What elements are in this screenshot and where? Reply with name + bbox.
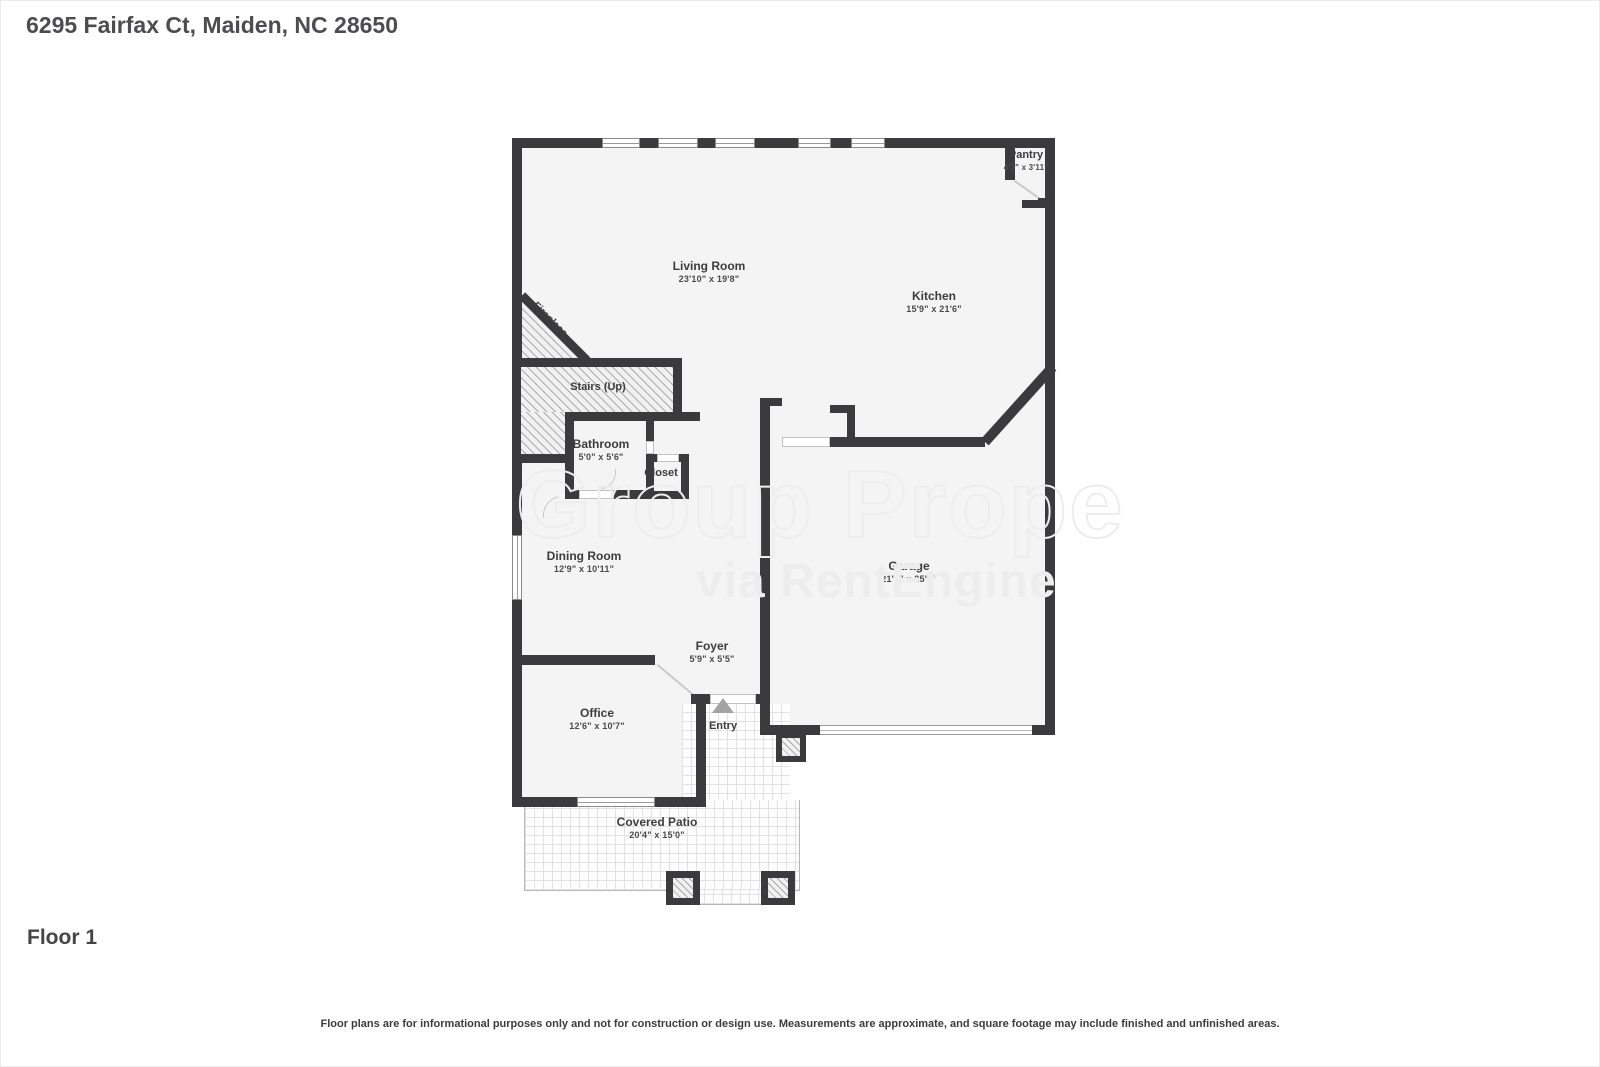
door-opening bbox=[579, 490, 614, 499]
wall-segment bbox=[512, 138, 1055, 148]
wall-segment bbox=[518, 358, 682, 367]
stairs-hatch bbox=[521, 412, 565, 458]
window bbox=[798, 138, 831, 148]
room-label-stairs: Stairs (Up) bbox=[570, 381, 626, 395]
wall-segment bbox=[512, 655, 655, 665]
window bbox=[512, 535, 522, 600]
wall-segment bbox=[673, 358, 682, 416]
wall-segment bbox=[760, 398, 770, 735]
patio-post bbox=[666, 871, 700, 905]
garage-door bbox=[820, 725, 1032, 735]
disclaimer: Floor plans are for informational purpos… bbox=[0, 1018, 1600, 1030]
wall-segment bbox=[1022, 200, 1055, 208]
page-title: 6295 Fairfax Ct, Maiden, NC 28650 bbox=[26, 12, 398, 39]
room-label-closet: Closet bbox=[644, 467, 678, 481]
room-label-dining-room: Dining Room 12'9" x 10'11" bbox=[547, 549, 622, 575]
window bbox=[602, 138, 640, 148]
wall-segment bbox=[847, 405, 855, 447]
wall-segment bbox=[760, 398, 782, 406]
garage-stoop bbox=[776, 732, 806, 762]
wall-segment bbox=[1045, 138, 1055, 735]
wall-segment bbox=[565, 412, 700, 421]
room-label-living-room: Living Room 23'10" x 19'8" bbox=[673, 259, 746, 285]
wall-segment bbox=[512, 138, 522, 535]
wall-segment bbox=[696, 703, 706, 807]
room-label-garage: Garage 21'5" x 25'9" bbox=[881, 559, 936, 585]
room-label-bathroom: Bathroom 5'0" x 5'6" bbox=[573, 437, 630, 463]
room-label-kitchen: Kitchen 15'9" x 21'6" bbox=[906, 289, 961, 315]
window bbox=[577, 797, 655, 807]
room-label-foyer: Foyer 5'9" x 5'5" bbox=[689, 639, 734, 665]
garage-entry-door-opening bbox=[782, 437, 830, 447]
room-label-entry: Entry bbox=[709, 720, 737, 734]
wall-segment bbox=[512, 454, 565, 463]
wall-segment bbox=[1032, 725, 1055, 735]
wall-segment bbox=[696, 694, 710, 704]
floor-label: Floor 1 bbox=[27, 926, 97, 950]
window bbox=[715, 138, 755, 148]
floor-plan-page: 6295 Fairfax Ct, Maiden, NC 28650 Group … bbox=[0, 0, 1600, 1067]
window bbox=[658, 138, 698, 148]
wall-segment bbox=[512, 600, 522, 807]
patio-post bbox=[761, 871, 795, 905]
floor-plan: Group Prope via RentEngine bbox=[510, 138, 1058, 908]
window bbox=[851, 138, 885, 148]
patio-pavers bbox=[524, 800, 800, 891]
wall-segment bbox=[646, 421, 654, 441]
door-opening bbox=[657, 454, 679, 462]
wall-segment bbox=[614, 490, 646, 499]
room-label-pantry: Pantry 4'1" x 3'11" bbox=[1004, 149, 1049, 173]
entry-arrow-icon bbox=[712, 698, 734, 713]
wall-segment bbox=[646, 491, 689, 499]
room-label-office: Office 12'6" x 10'7" bbox=[569, 706, 624, 732]
room-label-covered-patio: Covered Patio 20'4" x 15'0" bbox=[617, 815, 698, 841]
door-opening bbox=[646, 441, 654, 454]
